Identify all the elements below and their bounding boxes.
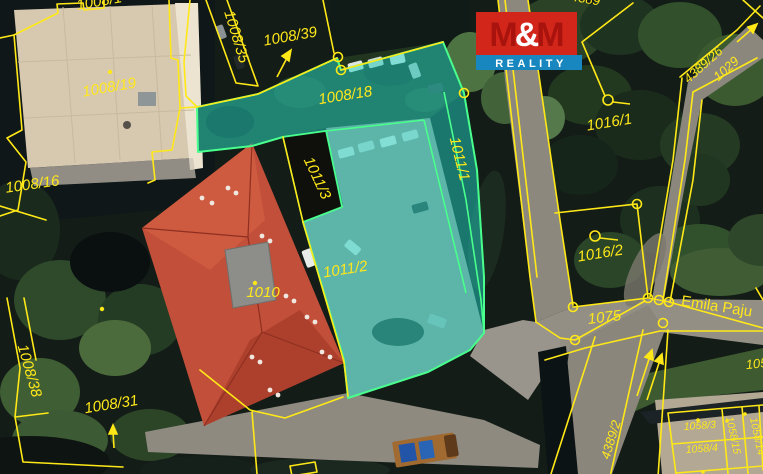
aerial-map-canvas: 1008/1 1008/19 1008/35 1008/39 1008/16 1… — [0, 0, 763, 474]
svg-text:M&M: M&M — [489, 16, 564, 54]
logo-letter-m2: M — [536, 16, 564, 54]
parcel-label-1010: 1010 — [246, 284, 280, 301]
parcel-label-1058-4: 1058/4 — [685, 442, 718, 456]
logo-letter-m1: M — [489, 16, 517, 54]
parcel-label-1058-3: 1058/3 — [683, 419, 716, 433]
logo-reality-text: REALITY — [495, 58, 567, 70]
parcel-label-105-partial: 105 — [745, 355, 763, 372]
mm-reality-logo: M&M REALITY — [476, 12, 582, 70]
cadastral-map-view[interactable]: 1008/1 1008/19 1008/35 1008/39 1008/16 1… — [0, 0, 763, 474]
